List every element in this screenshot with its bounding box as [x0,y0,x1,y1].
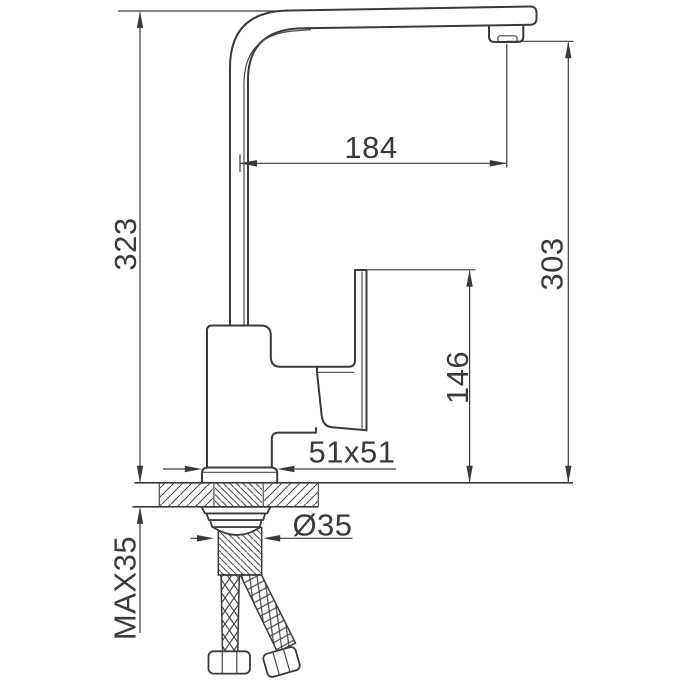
arrow-left-d35 [263,535,280,542]
arrow-up-max35 [137,507,143,524]
nozzle-outline [489,26,523,42]
supply-hoses [209,575,301,678]
dim-max-deck-thickness: MAX35 [108,507,144,640]
arrow-down-146 [466,466,472,483]
hose-fitting-right [262,646,301,678]
arrow-right-d35 [197,535,214,542]
countertop-cross-section [133,483,574,507]
arrow-up-146 [466,270,472,287]
dim-label-outlet-height: 303 [535,237,570,290]
dim-label-hole-diameter: Ø35 [292,508,352,543]
arrow-right-51x51 [185,466,202,473]
cartridge-cover [317,367,367,431]
fitting-left-nut [209,651,251,673]
deck-hatch-left [160,484,213,506]
arrow-right-184 [490,160,507,167]
handle-grip-outline [355,270,367,430]
drawing-page: 323 184 303 146 51x51 Ø35 [0,0,700,700]
arrow-up-303 [565,41,571,58]
arrow-down-323 [137,466,143,483]
faucet-handle [355,270,367,430]
dim-overall-height: 323 [108,11,289,483]
faucet-dimension-drawing: 323 184 303 146 51x51 Ø35 [0,0,700,700]
spout-nozzle [489,26,523,42]
nut-tier-1-washer [202,507,270,514]
dim-label-spout-reach: 184 [344,130,397,165]
flange-outline [202,468,277,484]
nut-tier-3 [210,520,262,527]
dim-outlet-height: 303 [507,41,574,483]
hose-fitting-left [209,651,251,673]
arrow-down-303 [565,466,571,483]
supply-hose-right [240,575,295,652]
dim-base-plate: 51x51 [163,435,396,473]
arrow-up-323 [137,11,143,28]
arrow-left-51x51 [277,466,294,473]
nut-tier-2 [207,513,266,520]
spout-inner-wall-line [244,30,311,326]
dim-label-max-deck-thickness: MAX35 [108,536,143,640]
dim-spout-reach: 184 [240,44,507,172]
dim-label-overall-height: 323 [108,217,143,270]
supply-hose-left [221,575,239,651]
fitting-right-nut [262,646,301,678]
base-flange [202,468,277,484]
dim-label-handle-height: 146 [440,351,475,404]
deck-hatch-right [264,484,317,506]
deck-hatch-hole [215,484,262,506]
dim-label-base-plate: 51x51 [309,435,396,470]
